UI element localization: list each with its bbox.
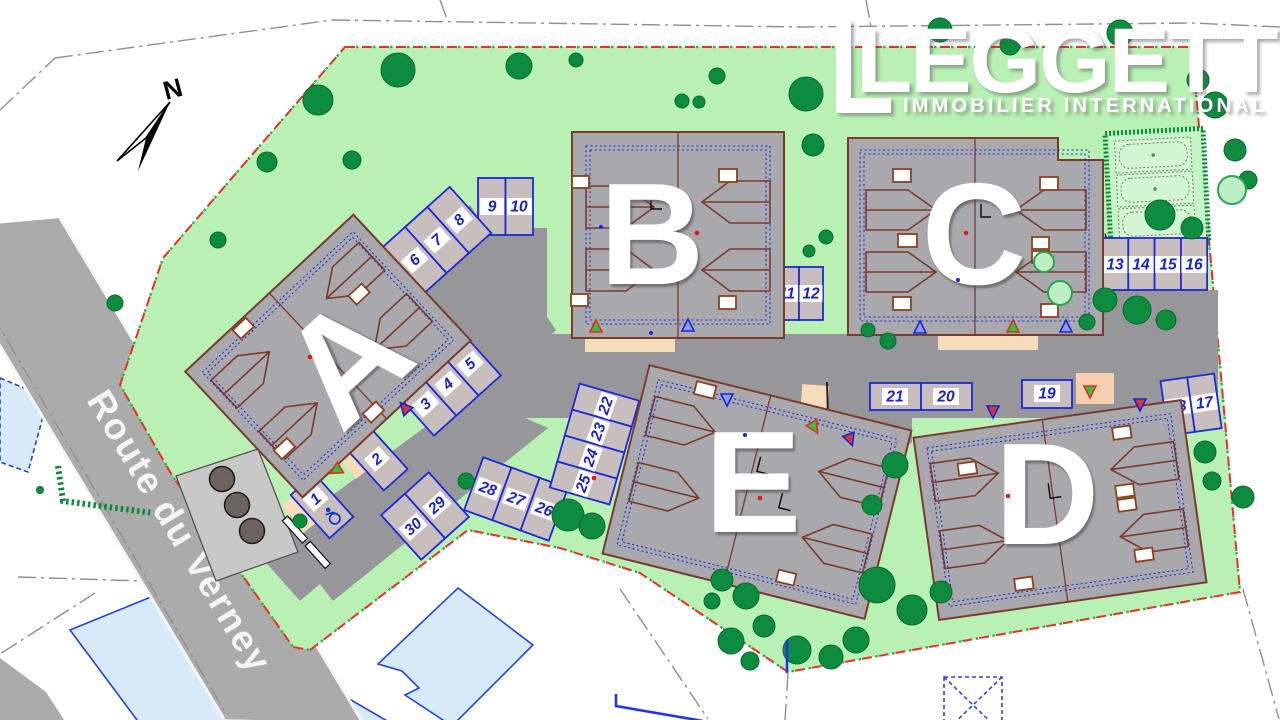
neighbour-building xyxy=(378,588,533,720)
parcel-line xyxy=(1243,589,1279,719)
survey-dot xyxy=(649,331,653,335)
roof-window-icon xyxy=(1014,577,1033,591)
parking-space-20: 20 xyxy=(921,383,972,410)
walkway xyxy=(585,338,675,352)
roof-window-icon xyxy=(1041,304,1058,317)
bin-icon xyxy=(225,493,250,518)
tree-icon xyxy=(861,323,875,337)
parking-number: 16 xyxy=(1185,257,1203,274)
tree-icon xyxy=(711,569,733,591)
tree-icon xyxy=(718,628,744,654)
parking-number: 15 xyxy=(1159,257,1177,274)
parking-space-19: 19 xyxy=(1022,380,1072,408)
tree-icon xyxy=(458,473,474,489)
road-surface xyxy=(0,658,64,720)
survey-dot xyxy=(599,225,603,229)
parking-number: 9 xyxy=(488,199,497,216)
tree-icon xyxy=(843,627,869,653)
tree-icon xyxy=(704,593,720,609)
survey-dot xyxy=(758,496,763,501)
survey-dot xyxy=(964,231,969,236)
walkway xyxy=(938,336,1038,350)
roof-window-icon xyxy=(893,297,911,310)
tree-icon xyxy=(343,151,361,169)
roof-window-icon xyxy=(719,169,737,182)
parking-number: 10 xyxy=(510,199,528,216)
tree-icon xyxy=(210,232,226,248)
tree-icon xyxy=(819,230,833,244)
survey-dot xyxy=(592,476,597,481)
parking-number: 20 xyxy=(936,389,955,406)
tree-icon xyxy=(693,96,705,108)
tree-icon xyxy=(579,513,605,539)
survey-dot xyxy=(743,433,747,437)
tree-icon xyxy=(1079,314,1095,330)
tree-icon xyxy=(1093,288,1117,312)
boundary-blue-segment xyxy=(616,694,703,720)
survey-dot xyxy=(956,278,960,282)
tree-icon xyxy=(506,53,532,79)
parking-space-13: 13 xyxy=(1102,238,1128,290)
tree-icon xyxy=(1181,217,1203,239)
parking-number: 21 xyxy=(885,389,903,406)
building-letter-c: C xyxy=(922,153,1027,315)
future-plot-marker xyxy=(944,677,1002,720)
tree-icon xyxy=(303,85,333,115)
site-plan-svg: Route du Verney xyxy=(0,0,1280,720)
parking-space-15: 15 xyxy=(1155,238,1181,290)
roof-window-icon xyxy=(898,234,917,247)
tree-icon xyxy=(1194,441,1216,463)
logo-tagline: IMMOBILIER INTERNATIONAL xyxy=(903,95,1267,117)
parcel-line xyxy=(18,577,142,581)
roof-window-icon xyxy=(893,169,911,182)
tree-icon xyxy=(293,514,307,528)
roof-window-icon xyxy=(1117,497,1136,511)
parking-number: 12 xyxy=(802,286,820,303)
tree-icon xyxy=(733,583,759,609)
parcel-line xyxy=(785,673,788,720)
tree-icon xyxy=(862,495,882,515)
tree-icon xyxy=(569,53,583,67)
north-label: N xyxy=(160,72,186,106)
roof-window-icon xyxy=(572,176,589,188)
bin-icon xyxy=(240,519,265,544)
north-arrow: N xyxy=(117,72,186,171)
building-letter-b: B xyxy=(600,153,705,315)
leggett-logo: LEGGETT IMMOBILIER INTERNATIONAL xyxy=(836,10,1278,117)
parking-space-10: 10 xyxy=(506,178,534,235)
building-letter-e: E xyxy=(705,401,802,563)
tree-icon xyxy=(675,94,689,108)
tree-icon xyxy=(1156,310,1176,330)
tree-icon xyxy=(1203,472,1221,490)
site-plan-page: Route du Verney xyxy=(0,0,1280,720)
tree-icon xyxy=(1218,176,1246,204)
parking-space-21: 21 xyxy=(870,383,921,410)
building-letter-d: D xyxy=(995,413,1100,575)
bin-icon xyxy=(210,467,235,492)
roof-window-icon xyxy=(1032,237,1049,249)
tree-icon xyxy=(257,152,277,172)
roof-window-icon xyxy=(719,296,736,309)
tree-icon xyxy=(882,452,908,478)
tree-icon xyxy=(1048,281,1072,305)
parcel-line xyxy=(55,20,332,58)
tree-icon xyxy=(107,295,123,311)
parking-number: 14 xyxy=(1132,257,1150,274)
tree-icon xyxy=(37,487,44,494)
tree-icon xyxy=(880,333,896,349)
tree-icon xyxy=(709,68,725,84)
survey-dot xyxy=(308,355,313,360)
tree-icon xyxy=(819,645,843,669)
roof-window-icon xyxy=(571,294,588,306)
survey-dot xyxy=(695,231,700,236)
roof-window-icon xyxy=(1040,177,1058,190)
tree-icon xyxy=(1232,486,1254,508)
tree-icon xyxy=(1224,139,1246,161)
tree-icon xyxy=(789,77,823,111)
parking-space-14: 14 xyxy=(1128,238,1154,290)
parking-number: 13 xyxy=(1106,257,1124,274)
tree-icon xyxy=(802,134,824,156)
parking-space-12: 12 xyxy=(799,267,823,320)
tree-icon xyxy=(741,652,759,670)
roof-window-icon xyxy=(958,461,977,475)
roof-window-icon xyxy=(1134,548,1153,562)
tree-icon xyxy=(381,53,415,87)
tree-icon xyxy=(897,595,927,625)
tree-icon xyxy=(1123,296,1151,324)
parking-number: 19 xyxy=(1038,386,1056,403)
tree-icon xyxy=(1145,200,1175,230)
tree-icon xyxy=(1034,252,1054,272)
survey-dot xyxy=(1006,494,1011,499)
roof-window-icon xyxy=(1115,484,1134,498)
tree-icon xyxy=(930,581,952,603)
tree-icon xyxy=(803,245,815,257)
parking-space-16: 16 xyxy=(1181,238,1207,290)
tree-icon xyxy=(859,567,895,603)
tree-icon xyxy=(753,615,775,637)
roof-window-icon xyxy=(1112,425,1131,439)
parcel-line xyxy=(440,0,447,19)
parcel-line xyxy=(0,58,55,110)
